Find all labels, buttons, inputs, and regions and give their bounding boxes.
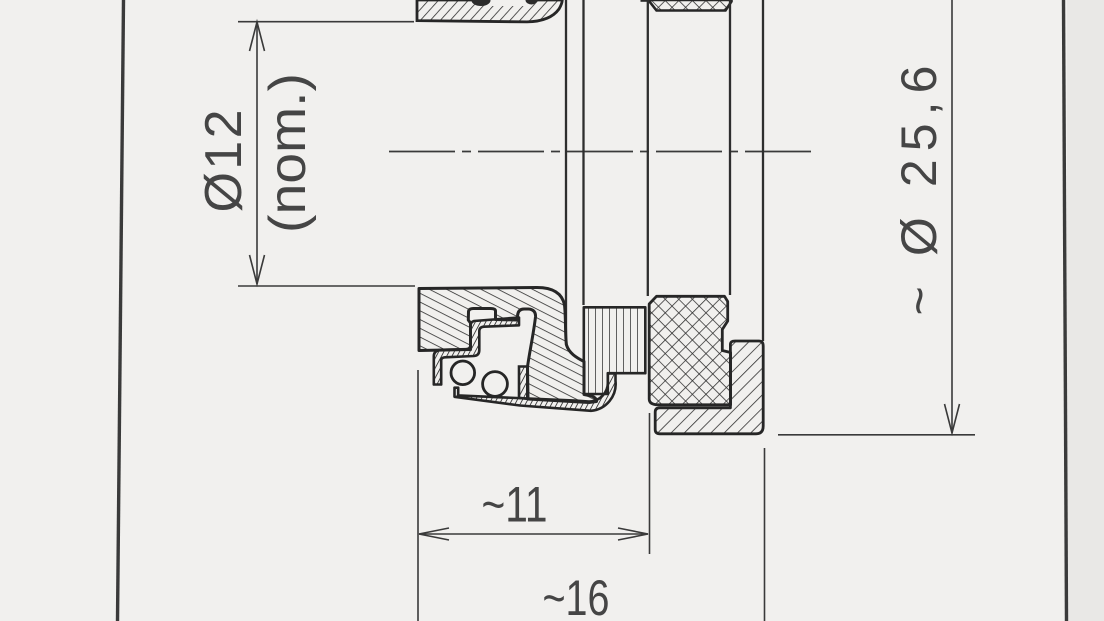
svg-text:Ø12: Ø12 xyxy=(195,110,253,213)
svg-text:~11: ~11 xyxy=(482,477,548,533)
svg-text:~16: ~16 xyxy=(543,570,610,621)
svg-text:(nom.): (nom.) xyxy=(259,73,317,233)
